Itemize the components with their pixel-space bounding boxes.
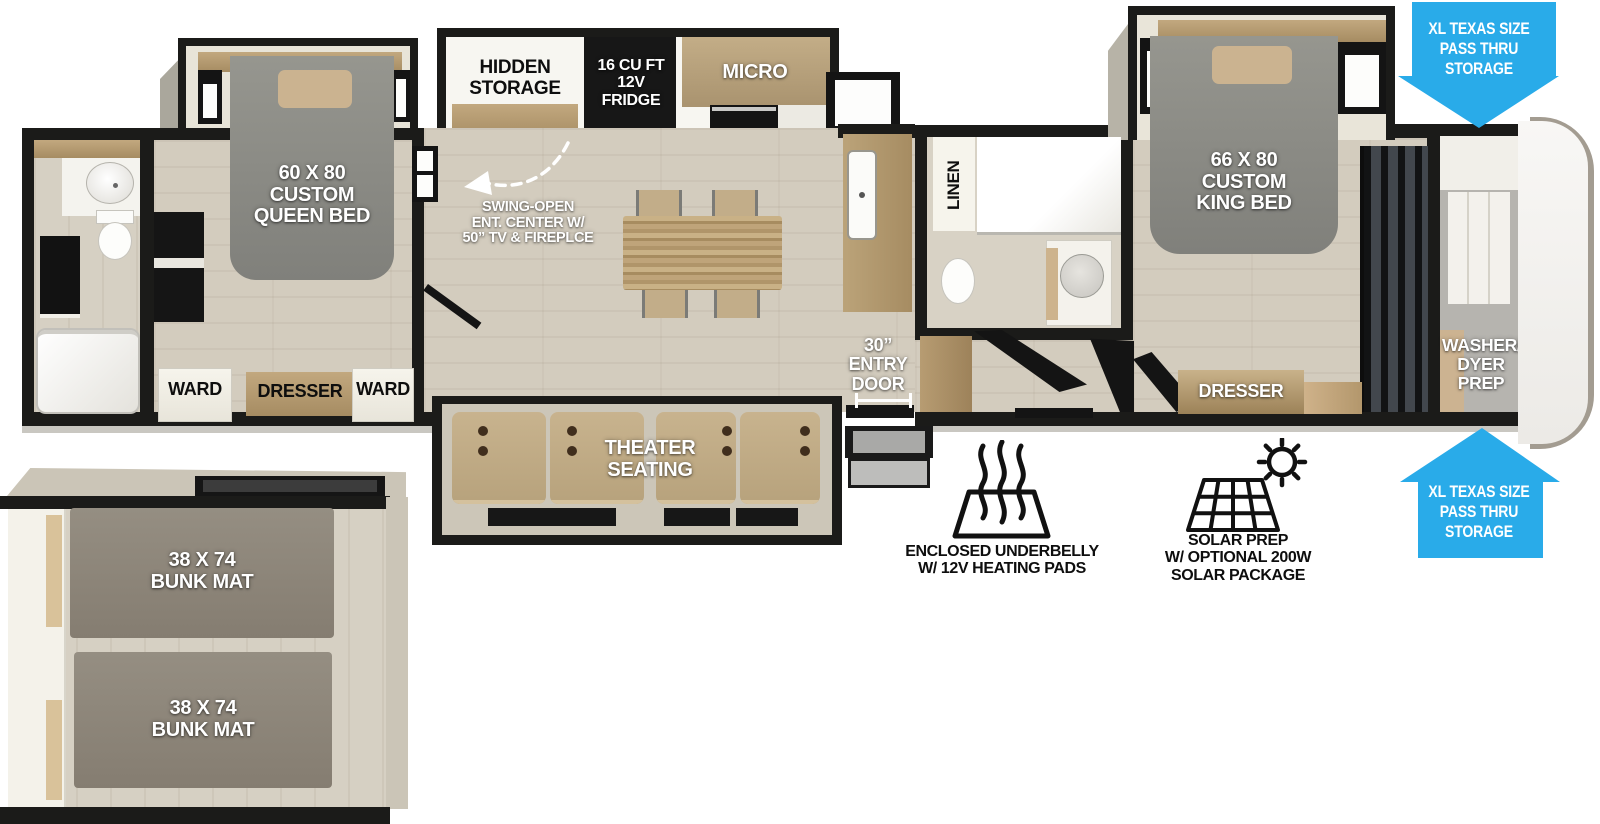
entry-door-label: 30” ENTRY DOOR (842, 336, 914, 394)
front-bath-shelf (34, 140, 140, 158)
ward-right-label: WARD (350, 380, 416, 399)
heated-underbelly-icon (945, 440, 1057, 542)
cupholder-dots-4 (800, 426, 810, 436)
stair-ramp (1304, 382, 1362, 414)
pass-thru-arrow-top-label: XL TEXAS SIZE PASS THRU STORAGE (1410, 19, 1548, 79)
fridge-label: 16 CU FT 12V FRIDGE (586, 57, 676, 109)
mid-bath-sink-icon (1060, 254, 1104, 298)
front-bath-sink-icon (86, 162, 134, 204)
bottom-wall-rear (915, 412, 1535, 426)
linen-label: LINEN (936, 144, 972, 226)
king-bed-label: 66 X 80 CUSTOM KING BED (1156, 150, 1332, 215)
mid-bath-toilet-icon (941, 258, 975, 304)
bunk-room-bottom-wall (0, 807, 390, 824)
entry-step-lower (848, 458, 930, 488)
dining-chair-4 (714, 290, 760, 318)
bunk-cabinet-panel-bottom (46, 700, 62, 800)
solar-prep-icon (1182, 438, 1312, 534)
entry-dim-tick-right (909, 393, 912, 408)
front-dresser-label: DRESSER (246, 382, 354, 401)
chassis-trim-rear (915, 426, 1535, 432)
theater-seat-4 (740, 412, 820, 504)
bunk-mat-bottom-label: 38 X 74 BUNK MAT (74, 698, 332, 741)
king-slide-window-right-pane (1345, 49, 1379, 107)
ent-center-note: SWING-OPEN ENT. CENTER W/ 50” TV & FIREP… (447, 200, 609, 247)
galley-window-pane (835, 80, 891, 126)
rear-bedroom-right-wall (1427, 126, 1440, 426)
bunk-mat-top-label: 38 X 74 BUNK MAT (70, 550, 334, 593)
queen-slide-window-right-pane (396, 75, 406, 117)
bunk-room-right-face (386, 497, 408, 809)
stairs-platform (1015, 408, 1093, 418)
king-pillow (1212, 46, 1292, 84)
front-bath-toilet-bowl (98, 222, 132, 260)
dining-chair-2 (712, 190, 758, 218)
front-bath-cabinet (40, 236, 80, 318)
queen-slide-window-left-pane (203, 76, 217, 118)
front-cap (1518, 121, 1588, 444)
cupholder-dots-2 (567, 426, 577, 436)
entry-step-upper-tread (853, 431, 925, 453)
rv-floorplan: 60 X 80 CUSTOM QUEEN BED 66 X 80 CUSTOM … (0, 0, 1600, 824)
queen-bed-label: 60 X 80 CUSTOM QUEEN BED (236, 163, 388, 228)
theater-floor-mat-1 (488, 508, 616, 526)
hidden-storage-label: HIDDEN STORAGE (450, 58, 580, 99)
micro-label: MICRO (690, 62, 820, 84)
bunk-room-counter-inner (203, 480, 377, 492)
rear-dresser-label: DRESSER (1178, 382, 1304, 401)
dining-chair-3 (642, 290, 688, 318)
shower-icon (977, 137, 1121, 235)
theater-seat-1 (452, 412, 546, 504)
entry-dim-line (856, 399, 912, 402)
rear-wardrobe-icon (1360, 146, 1428, 412)
entry-pantry-cabinet (920, 336, 972, 412)
queen-pillow (278, 70, 352, 108)
kitchen-faucet-dot (859, 192, 865, 198)
underbelly-caption: ENCLOSED UNDERBELLY W/ 12V HEATING PADS (898, 543, 1106, 578)
cupholder-dots-3 (722, 426, 732, 436)
dining-table (623, 216, 782, 290)
front-bedroom-tv-shelf (154, 258, 204, 268)
stove-handle (712, 107, 776, 111)
bunk-cabinet-panel-top (46, 515, 62, 627)
living-wall-window-pane1 (417, 151, 433, 171)
chassis-trim-front (22, 426, 440, 433)
front-bath-tub-icon (36, 328, 140, 414)
entry-dim-tick-left (855, 393, 858, 408)
theater-floor-mat-3 (736, 508, 798, 526)
pass-thru-arrow-top: XL TEXAS SIZE PASS THRU STORAGE (1398, 2, 1560, 130)
dining-chair-1 (636, 190, 682, 218)
washer-tall-cabinet (1448, 192, 1510, 304)
front-bath-faucet-dot (113, 183, 118, 188)
living-wall-window-pane2 (417, 175, 433, 197)
mid-bath-vanity-tan-panel (1046, 248, 1058, 320)
theater-floor-mat-2 (664, 508, 730, 526)
ward-left-label: WARD (158, 380, 232, 399)
theater-seating-label: THEATER SEATING (560, 438, 740, 481)
solar-caption: SOLAR PREP W/ OPTIONAL 200W SOLAR PACKAG… (1134, 532, 1342, 584)
swing-open-arrow-icon (452, 135, 580, 209)
pass-thru-arrow-bottom-label: XL TEXAS SIZE PASS THRU STORAGE (1410, 482, 1548, 542)
washer-prep-label: WASHER/ DYER PREP (1442, 336, 1520, 393)
cupholder-dots-1 (478, 426, 488, 436)
